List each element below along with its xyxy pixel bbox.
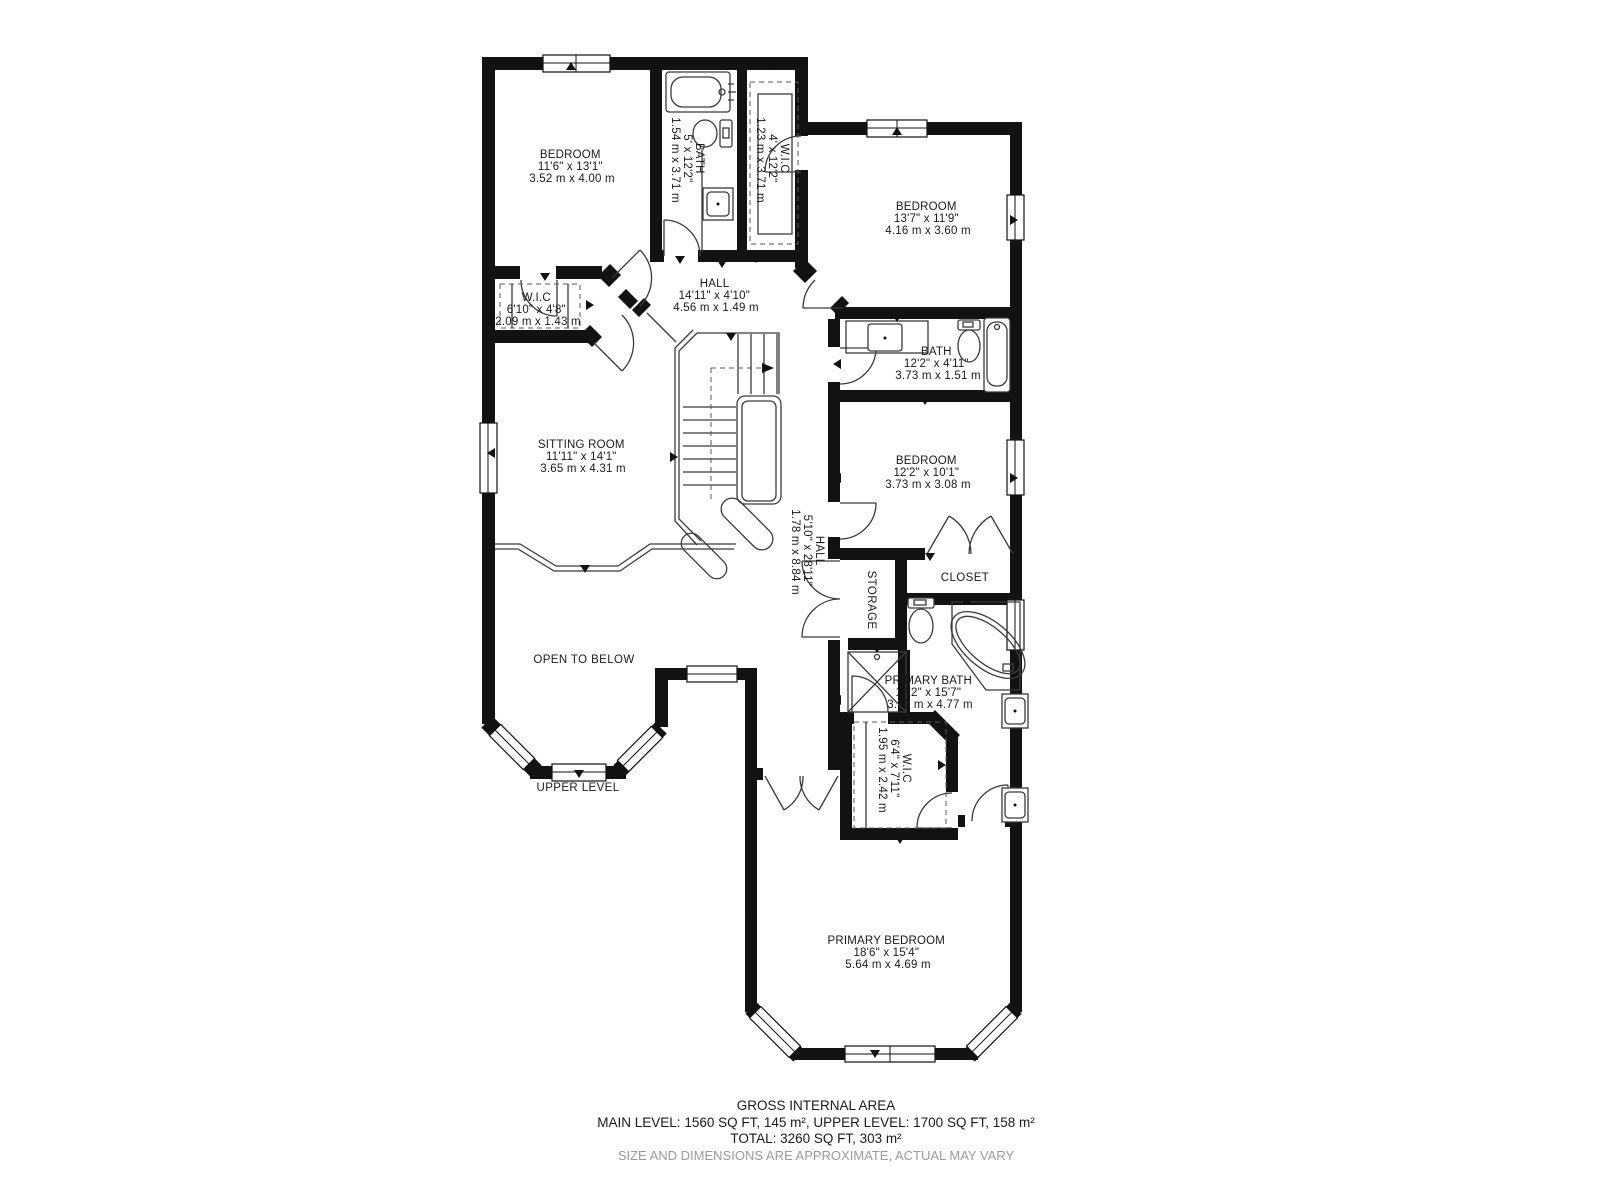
sink-primary-1 bbox=[1002, 694, 1028, 728]
bathtub-top bbox=[666, 72, 736, 112]
level-label: UPPER LEVEL bbox=[536, 782, 619, 794]
window-hall-bottom bbox=[687, 666, 737, 682]
label-sitting-room: SITTING ROOM 11'11" x 14'1" 3.65 m x 4.3… bbox=[538, 439, 628, 475]
window-bedroom2-right bbox=[1007, 195, 1024, 240]
door-bedroom3 bbox=[840, 503, 876, 539]
window-sitting-left bbox=[480, 423, 497, 493]
footer-total-line: TOTAL: 3260 SQ FT, 303 m² bbox=[730, 1131, 902, 1146]
label-primary-bedroom: PRIMARY BEDROOM 18'6" x 15'4" 5.64 m x 4… bbox=[827, 935, 948, 971]
svg-text:HALL 5'10" x 28'11": HALL 5'10" x 28'11" 1.78 m x 8.84 m bbox=[789, 509, 825, 594]
open-to-below-railing bbox=[495, 544, 736, 571]
sink-top bbox=[702, 150, 733, 252]
doors-closet-double bbox=[927, 516, 1013, 554]
label-closet: CLOSET bbox=[941, 572, 989, 584]
floor-plan-page: BEDROOM 11'6" x 13'1" 3.52 m x 4.00 m BA… bbox=[0, 0, 1600, 1200]
toilet-bath-mid bbox=[958, 320, 980, 362]
footer-disclaimer: SIZE AND DIMENSIONS ARE APPROXIMATE, ACT… bbox=[618, 1148, 1015, 1163]
label-bedroom-2: BEDROOM 13'7" x 11'9" 4.16 m x 3.60 m bbox=[885, 201, 970, 237]
window-open-below-bay-right bbox=[617, 726, 662, 771]
label-bedroom-3: BEDROOM 12'2" x 10'1" 3.73 m x 3.08 m bbox=[885, 455, 970, 491]
window-primary-bay-left bbox=[750, 1007, 801, 1058]
label-storage: STORAGE bbox=[865, 571, 877, 630]
footer: GROSS INTERNAL AREA MAIN LEVEL: 1560 SQ … bbox=[597, 1098, 1035, 1163]
toilet-primary-bath bbox=[908, 598, 934, 643]
door-shower bbox=[852, 676, 888, 712]
banister-volute bbox=[677, 494, 777, 583]
staircase bbox=[647, 313, 781, 583]
window-bedroom3-right bbox=[1007, 440, 1024, 495]
window-bedroom1-top bbox=[543, 55, 610, 72]
window-open-below-bay-left bbox=[489, 724, 534, 769]
label-open-to-below: OPEN TO BELOW bbox=[533, 654, 634, 666]
svg-text:STORAGE: STORAGE bbox=[865, 571, 877, 630]
window-primary-bath-right bbox=[1007, 600, 1024, 650]
window-primary-bottom bbox=[845, 1046, 935, 1062]
svg-text:W.I.C 6'4" x 7'11": W.I.C 6'4" x 7'11" 1.95 m x 2.42 m bbox=[876, 727, 912, 812]
label-wic-top: W.I.C 4' x 12'2" 1.23 m x 3.71 m bbox=[754, 117, 790, 202]
label-wic-primary: W.I.C 6'4" x 7'11" 1.95 m x 2.42 m bbox=[876, 727, 912, 812]
label-hall-top: HALL 14'11" x 4'10" 4.56 m x 1.49 m bbox=[673, 278, 758, 314]
bathtub-mid bbox=[984, 318, 1010, 392]
window-primary-bay-right bbox=[967, 1007, 1018, 1058]
door-bath-top bbox=[664, 220, 700, 256]
label-primary-bath: PRIMARY BATH 12'2" x 15'7" 3.73 m x 4.77… bbox=[885, 675, 976, 711]
footer-areas-line: MAIN LEVEL: 1560 SQ FT, 145 m², UPPER LE… bbox=[597, 1115, 1035, 1130]
floor-plan: BEDROOM 11'6" x 13'1" 3.52 m x 4.00 m BA… bbox=[0, 0, 1600, 1200]
svg-text:W.I.C 4' x 12'2": W.I.C 4' x 12'2" 1.23 m x 3.71 m bbox=[754, 117, 790, 202]
label-bedroom-1: BEDROOM 11'6" x 13'1" 3.52 m x 4.00 m bbox=[529, 149, 614, 185]
footer-title: GROSS INTERNAL AREA bbox=[737, 1098, 896, 1113]
doors-primary-bedroom-double bbox=[765, 776, 838, 810]
sink-primary-2 bbox=[1002, 788, 1028, 822]
label-hall-vertical: HALL 5'10" x 28'11" 1.78 m x 8.84 m bbox=[789, 509, 825, 594]
door-wic-primary bbox=[917, 793, 952, 828]
door-sitting-room bbox=[594, 315, 634, 371]
